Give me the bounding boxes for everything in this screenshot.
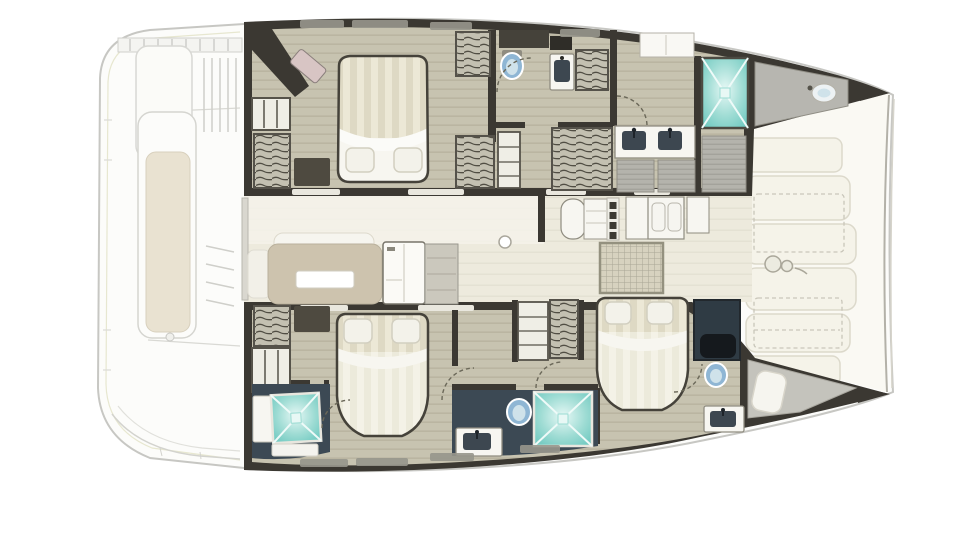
galley-worktop-2: [687, 197, 709, 233]
vanity-desk: [294, 306, 330, 332]
floor-hatch-grid: [600, 243, 663, 293]
wardrobe-hatched-large: [552, 128, 612, 190]
double-berth: [337, 314, 428, 438]
shelf-column: [498, 132, 520, 188]
galley-double-sink: [648, 197, 684, 239]
shelf-unit: [518, 302, 548, 360]
fridge-cabinet: [383, 242, 425, 304]
gray-floor-panel: [702, 136, 746, 192]
pillow: [647, 302, 673, 324]
wardrobe-hatched: [254, 134, 290, 188]
counter-unit: [425, 244, 458, 304]
wardrobe-hatched: [254, 306, 290, 346]
double-berth: [597, 298, 688, 410]
pillow: [346, 148, 374, 172]
washbasin-unit: [456, 428, 502, 456]
aft-head-starboard: [252, 384, 330, 459]
hanging-locker-hatched: [576, 50, 608, 90]
mid-storage: [518, 300, 578, 360]
counter-item: [550, 36, 572, 50]
galley-endcap: [561, 199, 585, 239]
galley-drawers: [584, 199, 608, 239]
stove-burners: [607, 198, 619, 240]
shower-tray: [272, 444, 318, 456]
pillow: [605, 302, 631, 324]
wardrobe-hatched: [550, 300, 578, 358]
bridge-deck: [242, 189, 752, 311]
side-seat-outline: [248, 250, 270, 298]
gray-floor-panel: [658, 160, 695, 192]
toilet: [705, 363, 727, 387]
double-berth: [338, 56, 428, 182]
closet-bench: [700, 334, 736, 358]
double-washbasin-vanity: [615, 126, 695, 158]
washbasin-unit: [550, 54, 574, 90]
shower-cabin: [534, 392, 592, 446]
dinette-table: [296, 271, 354, 288]
washbasin-unit: [704, 406, 744, 432]
faucet-dot: [808, 86, 813, 91]
shower-cabin: [702, 58, 748, 128]
toilet: [501, 50, 523, 79]
pillow: [392, 319, 420, 343]
bench-knob: [166, 333, 174, 341]
toilet: [507, 399, 531, 425]
wardrobe-hatched: [456, 32, 490, 76]
compression-post: [499, 236, 511, 248]
shelf-unit: [252, 98, 290, 130]
bench-cushion: [146, 152, 190, 332]
catamaran-floorplan: [0, 0, 960, 551]
vanity-desk: [294, 158, 330, 186]
wardrobe-hatched: [456, 136, 494, 188]
sliding-door: [242, 198, 248, 300]
pillow: [344, 319, 372, 343]
shower-cabin: [271, 393, 321, 443]
head-counter: [499, 30, 549, 48]
pillow: [394, 148, 422, 172]
cockpit-bench: [138, 112, 196, 341]
galley-worktop: [626, 197, 648, 239]
head-cabinet: [640, 33, 694, 57]
floorplan-canvas: [0, 0, 960, 551]
gray-floor-panel: [617, 160, 654, 192]
dark-closet: [694, 300, 740, 360]
galley-wall: [538, 196, 545, 242]
